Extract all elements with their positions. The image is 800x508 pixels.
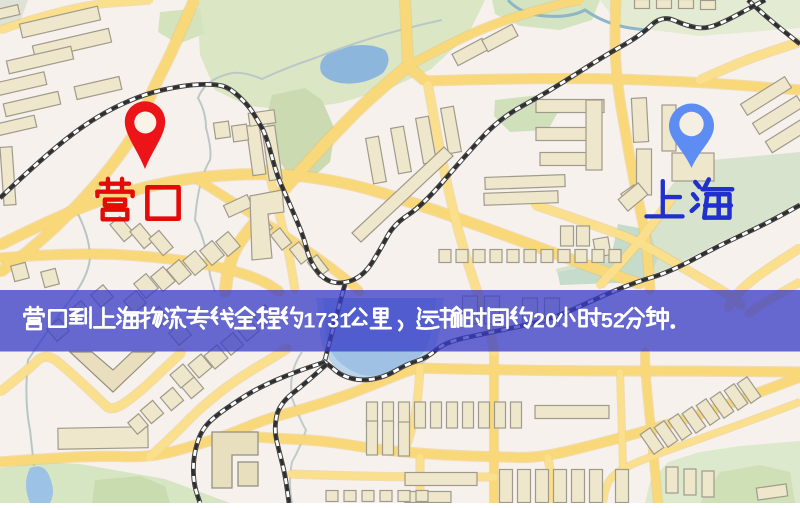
svg-text:52: 52	[601, 309, 625, 333]
svg-text:20: 20	[533, 309, 557, 333]
svg-text:1731: 1731	[303, 309, 351, 333]
